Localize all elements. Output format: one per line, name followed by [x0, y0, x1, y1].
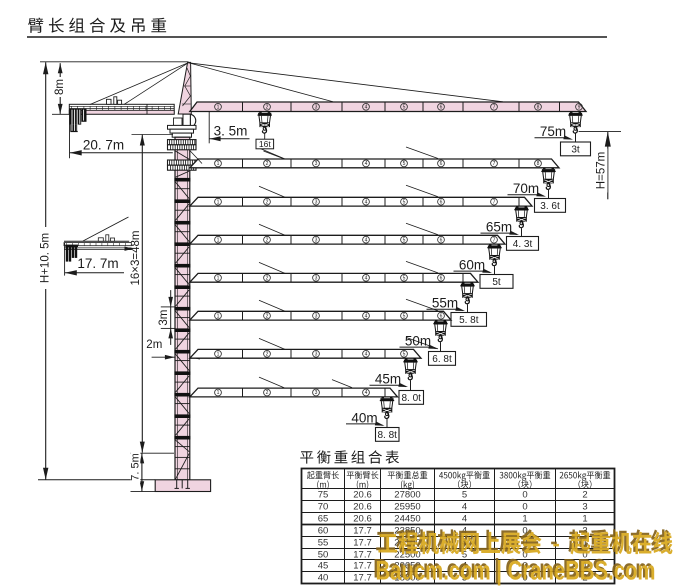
svg-text:3: 3	[582, 502, 587, 513]
svg-text:60: 60	[318, 526, 329, 537]
svg-text:4: 4	[365, 199, 368, 205]
svg-text:5: 5	[403, 313, 406, 319]
svg-text:3: 3	[315, 313, 318, 319]
svg-text:6: 6	[440, 199, 443, 205]
svg-text:1: 1	[217, 161, 220, 167]
svg-text:5t: 5t	[492, 277, 501, 288]
svg-text:50: 50	[318, 550, 329, 561]
svg-text:75m: 75m	[540, 124, 566, 139]
svg-text:20.6: 20.6	[353, 490, 372, 501]
svg-text:60m: 60m	[459, 258, 485, 273]
svg-text:65: 65	[318, 514, 329, 525]
svg-text:6. 8t: 6. 8t	[432, 354, 452, 365]
svg-text:70: 70	[318, 502, 329, 513]
svg-text:0: 0	[522, 502, 527, 513]
svg-text:2: 2	[266, 199, 269, 205]
svg-text:4: 4	[365, 276, 368, 282]
svg-text:5: 5	[403, 237, 406, 243]
svg-text:2m: 2m	[146, 339, 162, 351]
svg-text:8m: 8m	[54, 79, 66, 95]
svg-text:50m: 50m	[405, 334, 431, 349]
svg-text:3m: 3m	[158, 310, 170, 326]
svg-text:0: 0	[522, 490, 527, 501]
svg-text:H+10. 5m: H+10. 5m	[40, 233, 52, 283]
svg-text:7: 7	[493, 237, 496, 243]
svg-text:3: 3	[315, 276, 318, 282]
svg-text:4: 4	[365, 352, 368, 358]
svg-text:6: 6	[440, 161, 443, 167]
svg-text:5: 5	[462, 490, 467, 501]
svg-text:1: 1	[217, 352, 220, 358]
svg-text:17.7: 17.7	[353, 561, 372, 572]
svg-text:17. 7m: 17. 7m	[77, 256, 118, 271]
svg-text:1: 1	[217, 390, 220, 396]
svg-text:3: 3	[315, 161, 318, 167]
svg-text:2: 2	[266, 237, 269, 243]
svg-text:6: 6	[440, 105, 443, 111]
svg-text:65m: 65m	[486, 220, 512, 235]
svg-text:5: 5	[403, 161, 406, 167]
svg-text:3. 6t: 3. 6t	[540, 201, 560, 212]
svg-text:27800: 27800	[394, 490, 420, 501]
svg-text:5: 5	[403, 105, 406, 111]
svg-text:9: 9	[578, 105, 581, 111]
svg-text:4: 4	[365, 237, 368, 243]
svg-text:2: 2	[266, 105, 269, 111]
svg-text:3: 3	[315, 352, 318, 358]
svg-text:1: 1	[217, 105, 220, 111]
svg-text:4: 4	[462, 514, 467, 525]
svg-text:H=57m: H=57m	[596, 152, 608, 189]
svg-text:45: 45	[318, 561, 329, 572]
svg-text:5: 5	[403, 352, 406, 358]
svg-text:17.7: 17.7	[353, 573, 372, 584]
svg-text:1: 1	[217, 313, 220, 319]
svg-text:5. 8t: 5. 8t	[459, 315, 479, 326]
svg-text:1: 1	[217, 199, 220, 205]
svg-text:6: 6	[440, 313, 443, 319]
svg-text:2: 2	[266, 352, 269, 358]
svg-text:6: 6	[440, 276, 443, 282]
svg-text:3t: 3t	[571, 144, 580, 155]
svg-text:4: 4	[365, 313, 368, 319]
svg-text:1: 1	[582, 514, 587, 525]
svg-text:2: 2	[582, 490, 587, 501]
svg-text:2: 2	[266, 390, 269, 396]
svg-text:6: 6	[440, 237, 443, 243]
svg-text:4. 3t: 4. 3t	[513, 239, 533, 250]
svg-text:2: 2	[266, 276, 269, 282]
svg-text:70m: 70m	[513, 181, 539, 196]
svg-text:16t: 16t	[259, 139, 271, 149]
svg-text:8. 0t: 8. 0t	[401, 393, 421, 404]
svg-text:55m: 55m	[432, 296, 458, 311]
svg-text:17.7: 17.7	[353, 550, 372, 561]
svg-text:55: 55	[318, 538, 329, 549]
svg-text:1: 1	[217, 237, 220, 243]
svg-text:8: 8	[537, 105, 540, 111]
svg-text:40m: 40m	[351, 410, 377, 425]
svg-text:4: 4	[365, 161, 368, 167]
svg-text:25950: 25950	[394, 502, 420, 513]
svg-text:17.7: 17.7	[353, 538, 372, 549]
svg-text:45m: 45m	[375, 372, 401, 387]
svg-text:24450: 24450	[394, 514, 420, 525]
svg-text:3: 3	[315, 199, 318, 205]
svg-text:7: 7	[493, 199, 496, 205]
svg-text:1: 1	[217, 276, 220, 282]
svg-text:7: 7	[493, 161, 496, 167]
svg-text:5: 5	[403, 276, 406, 282]
svg-text:4: 4	[365, 390, 368, 396]
svg-text:4: 4	[462, 502, 467, 513]
svg-text:Baucm.com | CraneBBS.com: Baucm.com | CraneBBS.com	[376, 556, 656, 586]
svg-text:4: 4	[365, 105, 368, 111]
svg-text:20.6: 20.6	[353, 514, 372, 525]
svg-text:8. 8t: 8. 8t	[377, 430, 397, 441]
svg-text:75: 75	[318, 490, 329, 501]
svg-text:20. 7m: 20. 7m	[83, 138, 124, 153]
svg-text:5: 5	[403, 199, 406, 205]
svg-text:7. 5m: 7. 5m	[130, 453, 142, 481]
svg-text:1: 1	[522, 514, 527, 525]
svg-text:3: 3	[315, 105, 318, 111]
svg-text:7: 7	[493, 105, 496, 111]
svg-text:17.7: 17.7	[353, 526, 372, 537]
svg-text:2: 2	[266, 313, 269, 319]
svg-text:3. 5m: 3. 5m	[214, 124, 248, 139]
svg-text:20.6: 20.6	[353, 502, 372, 513]
svg-text:3: 3	[315, 390, 318, 396]
svg-text:2: 2	[266, 161, 269, 167]
svg-text:16×3=48m: 16×3=48m	[130, 231, 142, 286]
svg-text:40: 40	[318, 573, 329, 584]
svg-text:3: 3	[315, 237, 318, 243]
svg-text:8: 8	[537, 161, 540, 167]
